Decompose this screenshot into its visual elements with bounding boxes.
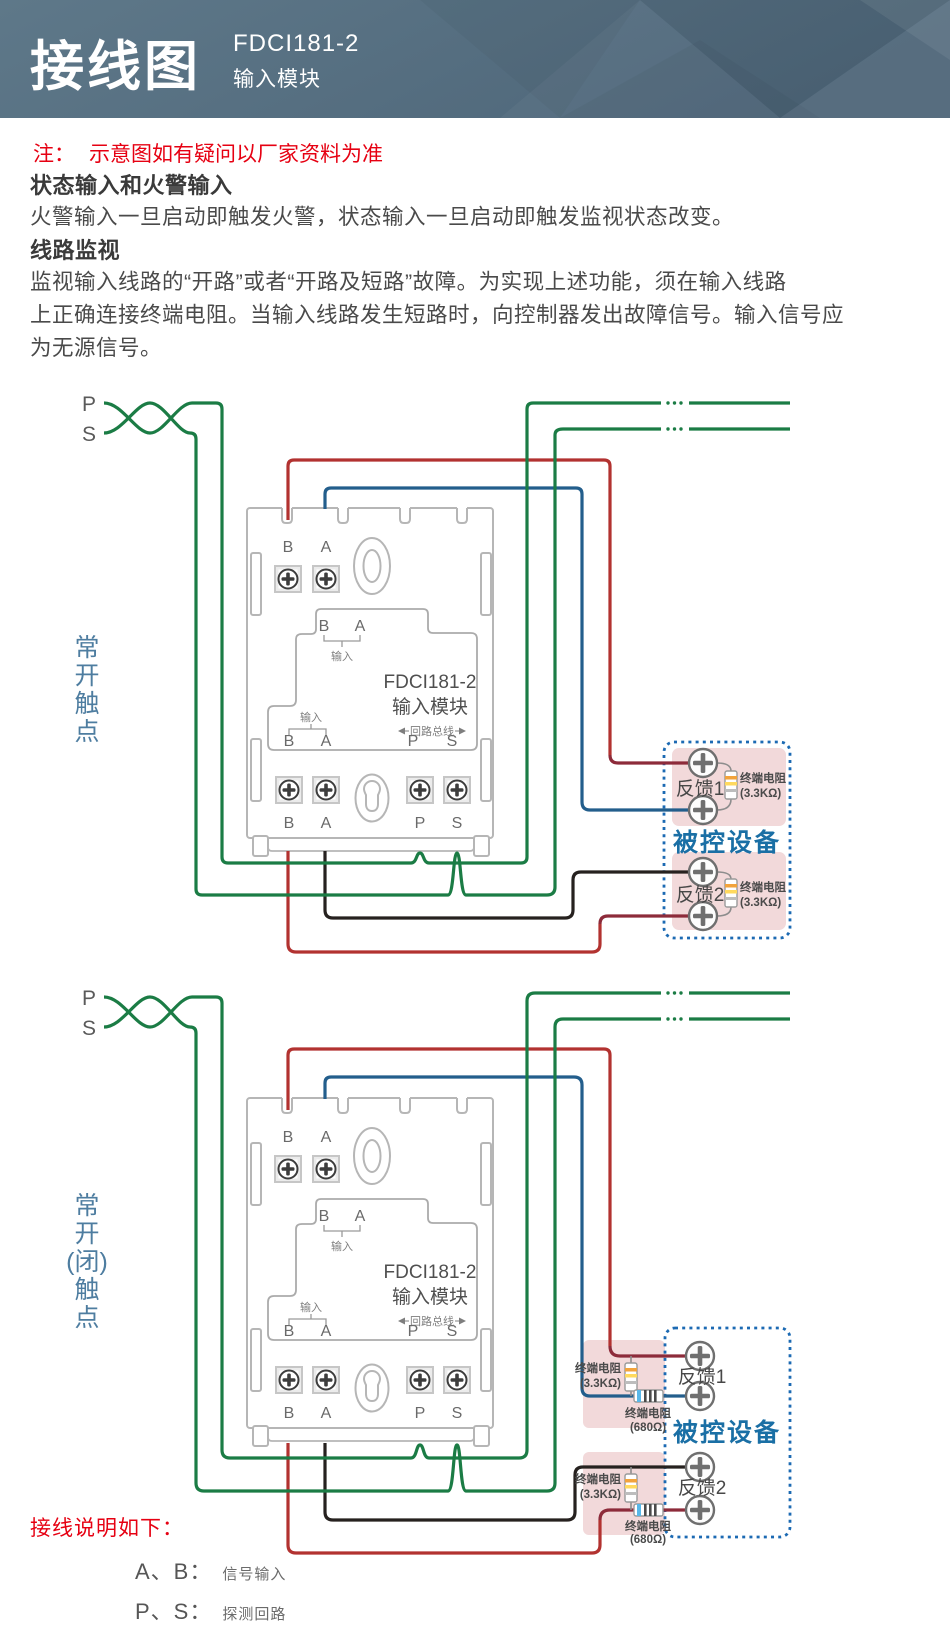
d2-fb2-res33-value: (3.3KΩ) bbox=[580, 1489, 621, 1501]
d1-wire-black bbox=[325, 851, 690, 918]
d2-fb2-res33-name: 终端电阻 bbox=[575, 1472, 621, 1486]
note-text: 示意图如有疑问以厂家资料为准 bbox=[89, 143, 383, 166]
d2-feedback1-label: 反馈1 bbox=[678, 1366, 727, 1388]
d1-feedback1-label: 反馈1 bbox=[676, 778, 725, 800]
bottom-screw-b-label: B bbox=[284, 815, 295, 832]
input-module-2 bbox=[247, 1096, 493, 1447]
d2-fb2-resistor-3.3k bbox=[625, 1474, 637, 1502]
d2-fb1-resistor-680 bbox=[634, 1390, 663, 1402]
module-side-slot bbox=[251, 739, 261, 801]
bottom-screw-s-label: S bbox=[452, 815, 463, 832]
header-banner: 接线图 FDCI181-2 输入模块 bbox=[0, 0, 950, 118]
d2-loop-p-label: P bbox=[82, 987, 96, 1010]
d1-feedback2-label: 反馈2 bbox=[676, 884, 725, 906]
inner-top-a-label: A bbox=[355, 618, 366, 635]
inner-top-b-label: B bbox=[319, 618, 330, 635]
inner-bottom-p-label: P bbox=[408, 733, 419, 750]
top-screw-b-label: B bbox=[283, 539, 294, 556]
note-line: 注：示意图如有疑问以厂家资料为准 bbox=[33, 138, 383, 168]
input-module: B A 输入 FDCI181-2 输入模块 输入 B A 回路总线 P S B … bbox=[247, 506, 493, 857]
d1-fb2-terminal-bottom bbox=[689, 902, 717, 930]
note-label: 注： bbox=[33, 143, 75, 166]
d2-fb1-res680-value: (680Ω) bbox=[630, 1422, 666, 1434]
d2-fb1-res33-name: 终端电阻 bbox=[575, 1361, 621, 1375]
module-foot bbox=[253, 836, 268, 856]
mounting-hole-bottom-inner bbox=[364, 781, 380, 811]
section-body-2-line2: 上正确连接终端电阻。当输入线路发生短路时，向控制器发出故障信号。输入信号应 bbox=[30, 298, 844, 329]
d2-fb1-res33-value: (3.3KΩ) bbox=[580, 1378, 621, 1390]
module-name-text: 输入模块 bbox=[392, 696, 468, 718]
section-body-1: 火警输入一旦启动即触发火警，状态输入一旦启动即触发监视状态改变。 bbox=[30, 200, 734, 231]
header-subtitle: FDCI181-2 输入模块 bbox=[233, 30, 359, 93]
top-screw-a-label: A bbox=[321, 539, 332, 556]
bottom-screw-a bbox=[313, 777, 339, 803]
section-heading-1: 状态输入和火警输入 bbox=[30, 168, 233, 200]
d1-fb1-terminal-top bbox=[689, 749, 717, 777]
page: 接线图 FDCI181-2 输入模块 注：示意图如有疑问以厂家资料为准 状态输入… bbox=[0, 0, 950, 1629]
section-heading-2: 线路监视 bbox=[30, 233, 120, 265]
d1-loop-p-label: P bbox=[82, 393, 96, 416]
inner-bottom-a-label: A bbox=[321, 733, 332, 750]
d2-fb2-terminal-top bbox=[686, 1453, 714, 1481]
bottom-screw-s bbox=[444, 777, 470, 803]
top-screw-a bbox=[313, 566, 339, 592]
d2-fb2-res680-name: 终端电阻 bbox=[625, 1519, 671, 1533]
d1-fb2-terminal-top bbox=[689, 858, 717, 886]
mounting-hole-top-inner bbox=[364, 550, 381, 582]
bottom-screw-a-label: A bbox=[321, 815, 332, 832]
d1-wire-red-bottom bbox=[288, 851, 600, 952]
d1-fb2-res-value: (3.3KΩ) bbox=[740, 897, 781, 909]
section-body-2-line1: 监视输入线路的“开路”或者“开路及短路”故障。为实现上述功能，须在输入线路 bbox=[30, 265, 787, 296]
module-bottom-lip bbox=[268, 838, 474, 851]
d2-fb2-terminal-bottom bbox=[686, 1496, 714, 1524]
bottom-screw-p-label: P bbox=[415, 815, 426, 832]
bottom-screw-b bbox=[276, 777, 302, 803]
d1-fb1-resistor-3.3k bbox=[725, 771, 737, 799]
d2-fb1-res680-name: 终端电阻 bbox=[625, 1406, 671, 1420]
d1-loop-s-label: S bbox=[82, 423, 96, 446]
d2-fb1-resistor-3.3k bbox=[625, 1363, 637, 1391]
top-screw-b bbox=[275, 566, 301, 592]
section-body-2-line3: 为无源信号。 bbox=[30, 331, 162, 362]
d1-fb1-terminal-bottom bbox=[689, 796, 717, 824]
d2-fb1-terminal-top bbox=[686, 1342, 714, 1370]
d2-fb2-res680-value: (680Ω) bbox=[630, 1534, 666, 1546]
module-model-text: FDCI181-2 bbox=[384, 672, 477, 693]
module-side-slot bbox=[481, 553, 491, 615]
d1-fb1-res-value: (3.3KΩ) bbox=[740, 788, 781, 800]
page-title: 接线图 bbox=[30, 22, 201, 101]
d1-fb2-resistor-3.3k bbox=[725, 879, 737, 907]
d1-fb1-res-name: 终端电阻 bbox=[740, 771, 786, 785]
d1-fb2-res-name: 终端电阻 bbox=[740, 880, 786, 894]
inner-bottom-b-label: B bbox=[284, 733, 295, 750]
module-side-slot bbox=[251, 553, 261, 615]
inner-bottom-s-label: S bbox=[447, 733, 458, 750]
wiring-diagram-canvas: B A 输入 FDCI181-2 输入模块 输入 B A 回路总线 P S B … bbox=[0, 380, 950, 1629]
d2-controlled-device-label: 被控设备 bbox=[673, 1419, 781, 1447]
d1-controlled-device-label: 被控设备 bbox=[673, 829, 781, 857]
d2-fb2-resistor-680 bbox=[634, 1504, 663, 1516]
module-side-slot bbox=[481, 739, 491, 801]
module-foot bbox=[474, 836, 489, 856]
d2-feedback2-label: 反馈2 bbox=[678, 1477, 727, 1499]
module-name: 输入模块 bbox=[233, 63, 359, 93]
inner-top-input-label: 输入 bbox=[331, 649, 353, 663]
d2-loop-s-label: S bbox=[82, 1017, 96, 1040]
inner-bottom-input-label: 输入 bbox=[300, 710, 322, 724]
bottom-screw-p bbox=[407, 777, 433, 803]
model-number: FDCI181-2 bbox=[233, 30, 359, 58]
